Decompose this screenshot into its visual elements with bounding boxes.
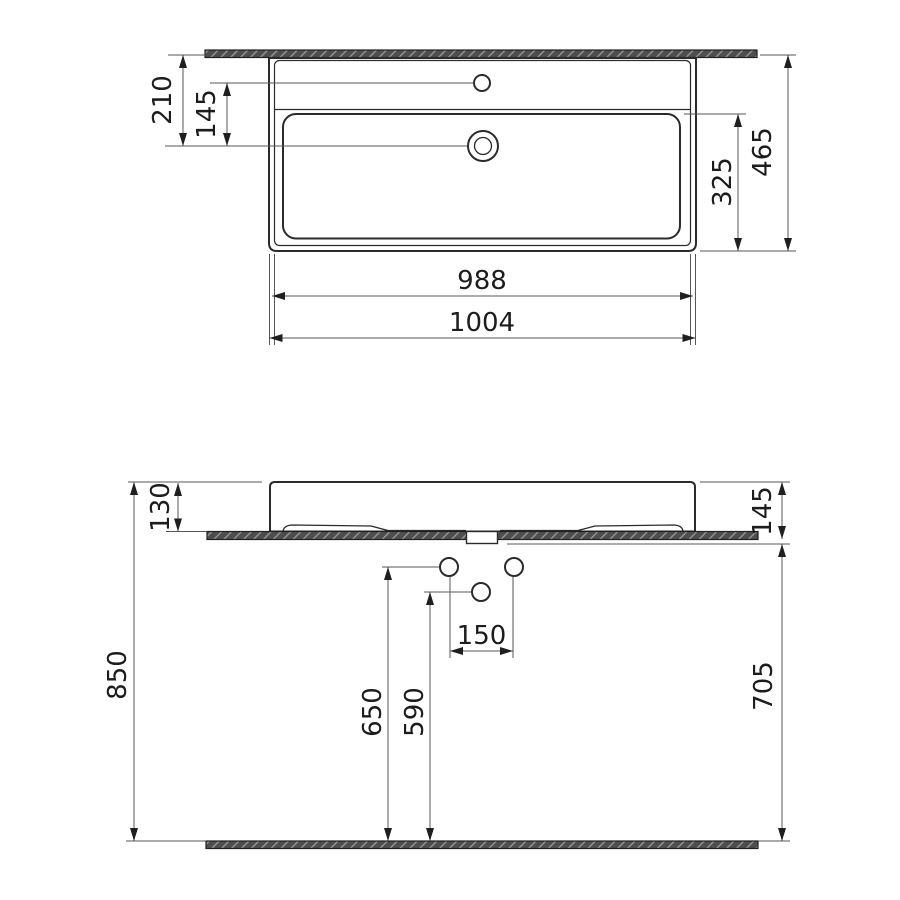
arrow-right-icon [683,334,696,342]
dim-faucet-to-drain: 145 [192,83,231,146]
dim-label-130: 130 [146,482,176,532]
arrow-up-icon [778,482,786,495]
arrow-down-icon [130,828,138,841]
front-view: 130 850 650 590 [103,482,790,849]
arrow-up-icon [784,55,792,68]
dim-label-150: 150 [457,621,507,651]
arrow-down-icon [223,133,231,146]
dim-hole-height-upper: 650 [358,567,392,841]
dim-label-145-front: 145 [748,486,778,536]
arrow-down-icon [179,133,187,146]
arrow-down-icon [426,828,434,841]
dim-label-1004: 1004 [449,308,515,338]
arrow-up-icon [384,567,392,580]
faucet-hole [474,75,490,91]
dim-overall-width: 1004 [270,308,696,342]
floor-section [206,841,758,849]
arrow-up-icon [130,482,138,495]
top-view: 210 145 325 465 [148,50,796,345]
arrow-left-icon [270,334,283,342]
dim-hole-height-lower: 590 [400,592,434,841]
wall-section [205,50,757,58]
dim-overall-depth: 465 [700,55,796,251]
arrow-down-icon [784,238,792,251]
technical-drawing: 210 145 325 465 [0,0,900,900]
arrow-down-icon [778,526,786,539]
arrow-up-icon [778,544,786,557]
drain-outer-circle [468,131,498,161]
mounting-hole-center [472,583,490,601]
dim-label-325: 325 [708,157,738,207]
drain-outlet [467,532,498,544]
dim-label-650: 650 [358,687,388,737]
arrow-down-icon [778,828,786,841]
arrow-up-icon [223,83,231,96]
dim-body-height: 130 [146,482,207,532]
arrow-down-icon [384,828,392,841]
mounting-hole-right [505,558,523,576]
arrow-left-icon [272,292,285,300]
dim-rim-height: 850 [103,482,206,841]
arrow-up-icon [426,592,434,605]
dim-label-705: 705 [749,661,779,711]
dim-label-590: 590 [400,687,430,737]
arrow-up-icon [734,114,742,127]
arrow-right-icon [680,292,693,300]
arrow-up-icon [179,55,187,68]
dim-underside-clearance: 705 [507,544,790,841]
arrow-down-icon [734,238,742,251]
drain [468,131,498,161]
sink-front-body [270,482,695,532]
dim-label-465: 465 [748,127,778,177]
dim-label-145: 145 [192,89,222,139]
dim-label-988: 988 [457,266,507,296]
mounting-hole-left [440,558,458,576]
dim-label-850: 850 [103,650,133,700]
dim-mounting-depth: 145 [748,482,786,539]
dim-label-210: 210 [148,75,178,125]
